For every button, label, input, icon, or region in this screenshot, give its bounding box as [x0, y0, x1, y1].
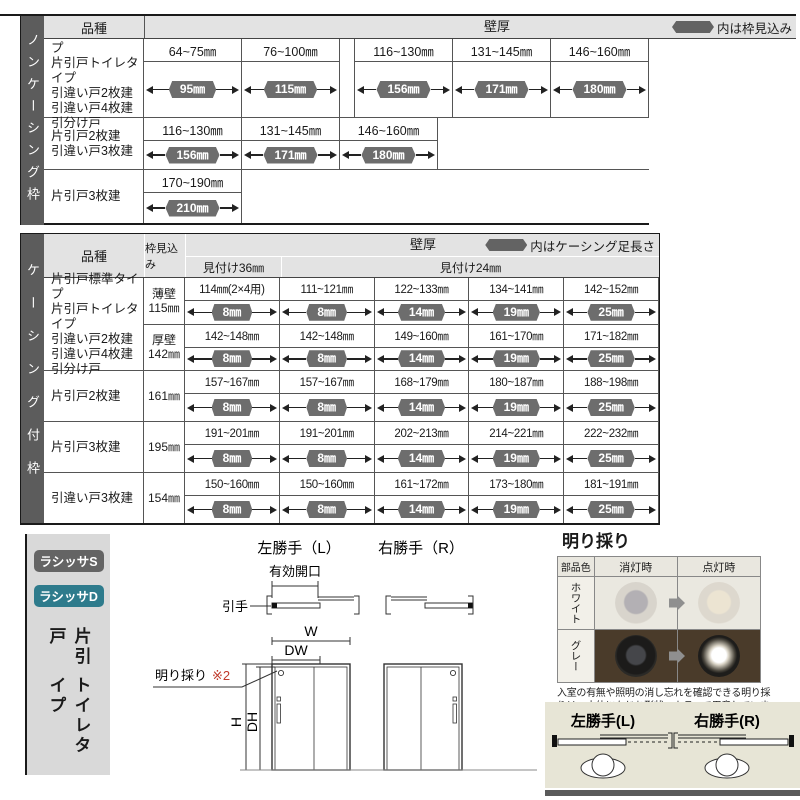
table-row: 片引戸標準タイプ片引戸トイレタイプ引違い戸2枚建引違い戸4枚建引分け戸 64~7… [44, 39, 649, 118]
spec-cells: 157~167㎜8㎜157~167㎜8㎜168~179㎜14㎜180~187㎜1… [185, 371, 659, 421]
spec-cell: 131~145㎜171㎜ [242, 118, 340, 169]
wall-thickness-range: 170~190㎜ [144, 170, 241, 193]
daylight-table-header: 部品色 消灯時 点灯時 [558, 557, 760, 577]
wall-thickness-range: 191~201㎜ [280, 422, 374, 445]
note-text: 内はケーシング足長さ [530, 236, 655, 255]
table-row: 片引戸2枚建引違い戸3枚建 116~130㎜156㎜131~145㎜171㎜14… [44, 118, 649, 170]
w-dimension-label: W [304, 623, 318, 639]
plan-left-hand [552, 733, 672, 748]
effective-opening-dimension [272, 581, 318, 598]
spec-cell: 111~121㎜8㎜ [280, 278, 375, 324]
table1-header-row: 品種 壁厚 内は枠見込み [44, 16, 796, 39]
depth-arrow: 14㎜ [375, 394, 469, 421]
spec-cell: 64~75㎜95㎜ [144, 39, 242, 117]
photo-white-light-on [678, 577, 760, 629]
depth-arrow: 8㎜ [185, 496, 279, 523]
spec-cells: 150~160㎜8㎜150~160㎜8㎜161~172㎜14㎜173~180㎜1… [185, 473, 659, 523]
depth-pill: 115㎜ [264, 81, 317, 98]
lens-gray-on [698, 635, 740, 677]
text-line: トイレタイプ [44, 676, 94, 775]
spec-cell: 76~100㎜115㎜ [242, 39, 340, 117]
wall-thickness-range: 222~232㎜ [564, 422, 658, 445]
text-line: 片引戸標準タイプ [51, 272, 143, 302]
depth-arrow: 8㎜ [185, 445, 279, 472]
mikomi-value: 161㎜ [144, 371, 184, 421]
depth-pill: 180㎜ [572, 81, 626, 98]
spec-cell: 150~160㎜8㎜ [280, 473, 375, 523]
mikomi-value: 195㎜ [144, 422, 184, 472]
sub-header-row: 見付け36㎜ 見付け24㎜ [186, 257, 659, 277]
spec-cell: 150~160㎜8㎜ [185, 473, 280, 523]
depth-arrow: 25㎜ [564, 348, 658, 371]
product-type-panel: ラシッサS ラシッサD 片引戸トイレタイプ [25, 534, 110, 775]
depth-arrow: 8㎜ [280, 301, 374, 324]
depth-pill: 25㎜ [587, 501, 634, 518]
lens-gray-off [615, 635, 657, 677]
spec-cell: 173~180㎜19㎜ [469, 473, 564, 523]
photo-gray-light-on [678, 630, 760, 682]
daylight-color-table: 部品色 消灯時 点灯時 ホワイト グレー [557, 556, 761, 683]
depth-arrow: 115㎜ [242, 62, 339, 117]
product-list: 片引戸2枚建引違い戸3枚建 [44, 118, 144, 169]
depth-arrow: 8㎜ [280, 496, 374, 523]
depth-arrow: 14㎜ [375, 301, 469, 324]
wall-thickness-range: 122~133㎜ [375, 278, 469, 301]
spec-cell: 149~160㎜14㎜ [375, 325, 470, 371]
wall-thickness-range: 171~182㎜ [564, 325, 658, 348]
spec-cell: 170~190㎜210㎜ [144, 170, 242, 223]
table-row: 片引戸3枚建 195㎜ 191~201㎜8㎜191~201㎜8㎜202~213㎜… [44, 422, 659, 473]
spec-cell: 214~221㎜19㎜ [469, 422, 564, 472]
depth-pill: 95㎜ [169, 81, 216, 98]
depth-pill: 14㎜ [398, 399, 445, 416]
plan-view-right [386, 596, 473, 614]
spec-cell: 161~170㎜19㎜ [469, 325, 564, 371]
left-hand-label: 左勝手(L) [570, 712, 635, 730]
mikomi-thin-wall: 薄壁115㎜ [144, 278, 184, 324]
depth-arrow: 19㎜ [469, 348, 563, 371]
spec-cell: 146~160㎜180㎜ [551, 39, 649, 117]
table-main: 品種 壁厚 内は枠見込み 片引戸標準タイプ片引戸トイレタイプ引違い戸2枚建引違い… [44, 16, 796, 225]
depth-arrow: 19㎜ [469, 445, 563, 472]
spec-cell: 161~172㎜14㎜ [375, 473, 470, 523]
product-label: 片引戸3枚建 [44, 422, 144, 472]
wall-header: 壁厚 内はケーシング足長さ [186, 234, 659, 257]
text-line: 115㎜ [148, 301, 179, 315]
depth-pill: 8㎜ [306, 501, 347, 518]
text-line: 片引戸2枚建 [51, 129, 143, 144]
wall-thickness-range: 64~75㎜ [144, 39, 241, 62]
depth-pill: 19㎜ [493, 350, 540, 367]
wall-thickness-range: 142~148㎜ [185, 325, 279, 348]
spec-cell: 146~160㎜180㎜ [340, 118, 438, 169]
depth-pill: 19㎜ [493, 304, 540, 321]
empty-cell [438, 118, 649, 169]
col-light-off: 消灯時 [595, 557, 678, 576]
depth-pill: 8㎜ [306, 450, 347, 467]
depth-pill: 19㎜ [493, 450, 540, 467]
col-header-wall: 壁厚 [397, 16, 597, 38]
hand-direction-drawing: 左勝手(L) 右勝手(R) [545, 702, 800, 788]
depth-arrow: 8㎜ [280, 445, 374, 472]
col-light-on: 点灯時 [678, 557, 760, 576]
product-label: 片引戸2枚建 [44, 371, 144, 421]
photo-white-light-off [595, 577, 678, 629]
text-line: 引違い戸3枚建 [51, 144, 143, 159]
spec-sheet: ノンケーシング枠 品種 壁厚 内は枠見込み 片引戸標準タイプ片引戸トイレタイプ引… [0, 0, 800, 800]
depth-pill: 14㎜ [398, 501, 445, 518]
depth-pill: 25㎜ [587, 304, 634, 321]
spec-cell: 116~130㎜156㎜ [355, 39, 453, 117]
page-footer-band [545, 790, 800, 796]
wall-thickness-range: 150~160㎜ [185, 473, 279, 496]
depth-pill: 8㎜ [212, 450, 253, 467]
depth-pill: 14㎜ [398, 350, 445, 367]
door-dimension-drawing: 左勝手（L） 右勝手（R） 有効開口 引手 W [108, 531, 553, 790]
wall-thickness-range: 157~167㎜ [185, 371, 279, 394]
note-ref-label: ※2 [212, 668, 230, 683]
depth-arrow: 14㎜ [375, 496, 469, 523]
depth-arrow: 171㎜ [242, 141, 339, 169]
spec-cell: 180~187㎜19㎜ [469, 371, 564, 421]
col-header-wall-wrap: 壁厚 内は枠見込み [145, 16, 796, 38]
wall-thickness-range: 116~130㎜ [355, 39, 452, 62]
h-dimension-label: H [228, 717, 244, 727]
hand-direction-panel: 左勝手(L) 右勝手(R) [545, 702, 800, 788]
table-main: 品種 枠見込み 壁厚 内はケーシング足長さ 見付け36㎜ 見付け24㎜ [44, 234, 659, 523]
spacer-cell [340, 39, 355, 117]
spec-cell: 222~232㎜25㎜ [564, 422, 659, 472]
depth-arrow: 8㎜ [280, 394, 374, 421]
depth-arrow: 180㎜ [551, 62, 648, 117]
dh-dimension-label: DH [244, 712, 260, 732]
person-top-view-icon [705, 754, 749, 778]
depth-pill: 8㎜ [306, 399, 347, 416]
depth-arrow: 210㎜ [144, 193, 241, 223]
depth-pill: 25㎜ [587, 399, 634, 416]
depth-arrow: 14㎜ [375, 348, 469, 371]
wall-thickness-range: 114㎜(2×4用) [185, 278, 279, 301]
wall-thickness-range: 134~141㎜ [469, 278, 563, 301]
text-line: 片引戸3枚建 [51, 189, 143, 204]
spec-cell: 157~167㎜8㎜ [280, 371, 375, 421]
row-label-white: ホワイト [558, 577, 595, 629]
spec-cells: 191~201㎜8㎜191~201㎜8㎜202~213㎜14㎜214~221㎜1… [185, 422, 659, 472]
empty-cell [242, 170, 649, 223]
wall-thickness-range: 142~148㎜ [280, 325, 374, 348]
right-hand-title: 右勝手（R） [378, 540, 464, 557]
depth-arrow: 25㎜ [564, 394, 658, 421]
depth-arrow: 19㎜ [469, 301, 563, 324]
wall-thickness-range: 142~152㎜ [564, 278, 658, 301]
note-text: 内は枠見込み [717, 18, 792, 37]
spec-cell: 142~152㎜25㎜ [564, 278, 659, 324]
wall-thickness-range: 168~179㎜ [375, 371, 469, 394]
handle-label: 引手 [222, 599, 248, 614]
effective-opening-label: 有効開口 [269, 564, 321, 579]
daylight-section-title: 明り採り [562, 527, 630, 552]
row-label-gray: グレー [558, 630, 595, 682]
spec-cells: 142~148㎜8㎜142~148㎜8㎜149~160㎜14㎜161~170㎜1… [185, 325, 659, 371]
elevation-right [384, 664, 462, 770]
depth-pill: 210㎜ [165, 200, 219, 217]
depth-pill: 25㎜ [587, 350, 634, 367]
spec-cell: 114㎜(2×4用)8㎜ [185, 278, 280, 324]
elevation-left [272, 664, 350, 770]
sub-header-face36: 見付け36㎜ [186, 257, 282, 277]
depth-pill: 8㎜ [212, 501, 253, 518]
depth-pill: 156㎜ [165, 147, 219, 164]
daylight-row-white: ホワイト [558, 577, 760, 629]
depth-pill: 14㎜ [398, 304, 445, 321]
depth-pill: 25㎜ [587, 450, 634, 467]
dw-dimension-label: DW [284, 642, 308, 658]
depth-pill: 171㎜ [263, 147, 317, 164]
table-row-group: 片引戸標準タイプ片引戸トイレタイプ引違い戸2枚建引違い戸4枚建引分け戸 薄壁11… [44, 278, 659, 371]
spec-cell: 142~148㎜8㎜ [185, 325, 280, 371]
plan-right-hand [674, 733, 794, 748]
col-header-kind: 品種 [44, 16, 145, 38]
text-line: 厚壁 [152, 333, 176, 347]
depth-arrow: 25㎜ [564, 445, 658, 472]
text-line: 引違い戸2枚建 [51, 332, 143, 347]
text-line: 引違い戸4枚建 [51, 101, 143, 116]
depth-pill: 8㎜ [212, 350, 253, 367]
spec-cell: 181~191㎜25㎜ [564, 473, 659, 523]
col-header-mikomi: 枠見込み [145, 234, 186, 277]
sub-header-face24: 見付け24㎜ [282, 257, 659, 277]
table-casing-frame: ケーシング付枠 品種 枠見込み 壁厚 内はケーシング足長さ 見付け36㎜ 見付 [20, 233, 660, 525]
wall-thickness-range: 191~201㎜ [185, 422, 279, 445]
depth-pill: 19㎜ [493, 501, 540, 518]
spec-cells: 64~75㎜95㎜76~100㎜115㎜116~130㎜156㎜131~145㎜… [144, 39, 649, 117]
depth-arrow: 19㎜ [469, 496, 563, 523]
product-type-vertical-label: 片引戸トイレタイプ [41, 627, 97, 775]
depth-pill: 8㎜ [306, 304, 347, 321]
spec-cell: 157~167㎜8㎜ [185, 371, 280, 421]
wall-thickness-range: 157~167㎜ [280, 371, 374, 394]
page-corner-line [0, 14, 21, 16]
wall-thickness-range: 111~121㎜ [280, 278, 374, 301]
series-badge-lasissa-d: ラシッサD [34, 585, 104, 607]
note-pill-icon [672, 21, 714, 33]
depth-pill: 180㎜ [361, 147, 415, 164]
spec-cell: 191~201㎜8㎜ [280, 422, 375, 472]
depth-arrow: 25㎜ [564, 301, 658, 324]
product-list: 片引戸3枚建 [44, 170, 144, 223]
mikomi-value: 154㎜ [144, 473, 184, 523]
table-row: 片引戸3枚建 170~190㎜210㎜ [44, 170, 649, 225]
table-noncasing-frame: ノンケーシング枠 品種 壁厚 内は枠見込み 片引戸標準タイプ片引戸トイレタイプ引… [20, 14, 796, 225]
spec-cell: 202~213㎜14㎜ [375, 422, 470, 472]
depth-pill: 14㎜ [398, 450, 445, 467]
col-part-color: 部品色 [558, 557, 595, 576]
person-top-view-icon [581, 754, 625, 778]
depth-arrow: 14㎜ [375, 445, 469, 472]
lens-white-off [615, 582, 657, 624]
depth-pill: 19㎜ [493, 399, 540, 416]
product-list: 片引戸標準タイプ片引戸トイレタイプ引違い戸2枚建引違い戸4枚建引分け戸 [44, 278, 144, 370]
product-list: 片引戸標準タイプ片引戸トイレタイプ引違い戸2枚建引違い戸4枚建引分け戸 [44, 39, 144, 117]
left-hand-title: 左勝手（L） [257, 540, 340, 557]
spec-cell: 116~130㎜156㎜ [144, 118, 242, 169]
table-row: 片引戸2枚建 161㎜ 157~167㎜8㎜157~167㎜8㎜168~179㎜… [44, 371, 659, 422]
sidebar-casing-frame-label: ケーシング付枠 [21, 234, 44, 523]
depth-arrow: 8㎜ [185, 394, 279, 421]
text-line: 引違い戸2枚建 [51, 86, 143, 101]
text-line: 入室の有無や照明の消し忘れを確認できる明り採 [557, 687, 775, 700]
spec-cells: 114㎜(2×4用)8㎜111~121㎜8㎜122~133㎜14㎜134~141… [185, 278, 659, 324]
wall-thickness-range: 214~221㎜ [469, 422, 563, 445]
wall-thickness-range: 188~198㎜ [564, 371, 658, 394]
depth-pill: 8㎜ [212, 304, 253, 321]
text-line: 薄壁 [152, 287, 176, 301]
depth-pill: 156㎜ [376, 81, 430, 98]
wall-thickness-range: 131~145㎜ [242, 118, 339, 141]
spec-cell: 171~182㎜25㎜ [564, 325, 659, 371]
photo-gray-light-off [595, 630, 678, 682]
daylight-window-label: 明り採り [155, 668, 207, 683]
spec-cell: 122~133㎜14㎜ [375, 278, 470, 324]
depth-pill: 8㎜ [306, 350, 347, 367]
wall-thickness-range: 161~170㎜ [469, 325, 563, 348]
daylight-row-gray: グレー [558, 629, 760, 682]
table1-body: 片引戸標準タイプ片引戸トイレタイプ引違い戸2枚建引違い戸4枚建引分け戸 64~7… [44, 39, 649, 225]
text-line: 引違い戸4枚建 [51, 347, 143, 362]
depth-arrow: 171㎜ [453, 62, 550, 117]
product-label: 引違い戸3枚建 [44, 473, 144, 523]
spec-cells: 170~190㎜210㎜ [144, 170, 649, 223]
text-line: 片引戸 [44, 627, 94, 676]
depth-arrow: 156㎜ [355, 62, 452, 117]
sub-rows: 114㎜(2×4用)8㎜111~121㎜8㎜122~133㎜14㎜134~141… [185, 278, 659, 370]
spec-cell: 142~148㎜8㎜ [280, 325, 375, 371]
sidebar-noncasing-frame-label: ノンケーシング枠 [21, 16, 44, 225]
text-line: 片引戸トイレタイプ [51, 302, 143, 332]
depth-arrow: 156㎜ [144, 141, 241, 169]
wall-thickness-range: 181~191㎜ [564, 473, 658, 496]
wall-thickness-range: 202~213㎜ [375, 422, 469, 445]
header-note: 内は枠見込み [672, 16, 792, 38]
spec-cell: 131~145㎜171㎜ [453, 39, 551, 117]
depth-arrow: 8㎜ [280, 348, 374, 371]
depth-arrow: 19㎜ [469, 394, 563, 421]
text-line: 142㎜ [148, 347, 180, 361]
wall-thickness-range: 116~130㎜ [144, 118, 241, 141]
wall-thickness-range: 76~100㎜ [242, 39, 339, 62]
lens-white-on [698, 582, 740, 624]
note-pill-icon [485, 239, 527, 251]
spec-cell: 191~201㎜8㎜ [185, 422, 280, 472]
depth-arrow: 180㎜ [340, 141, 437, 169]
wall-thickness-range: 131~145㎜ [453, 39, 550, 62]
wall-thickness-range: 180~187㎜ [469, 371, 563, 394]
spec-cell: 134~141㎜19㎜ [469, 278, 564, 324]
depth-pill: 8㎜ [212, 399, 253, 416]
text-line: 片引戸トイレタイプ [51, 56, 143, 86]
wall-thickness-range: 161~172㎜ [375, 473, 469, 496]
spec-cell: 188~198㎜25㎜ [564, 371, 659, 421]
header-note: 内はケーシング足長さ [485, 234, 655, 256]
spec-cells: 116~130㎜156㎜131~145㎜171㎜146~160㎜180㎜ [144, 118, 649, 169]
depth-arrow: 8㎜ [185, 301, 279, 324]
depth-arrow: 25㎜ [564, 496, 658, 523]
spec-cell: 168~179㎜14㎜ [375, 371, 470, 421]
plan-view-left [267, 596, 359, 614]
col-header-wall-group: 壁厚 内はケーシング足長さ 見付け36㎜ 見付け24㎜ [186, 234, 659, 277]
depth-pill: 171㎜ [474, 81, 528, 98]
mikomi-thick-wall: 厚壁142㎜ [144, 324, 184, 371]
depth-arrow: 95㎜ [144, 62, 241, 117]
wall-thickness-range: 146~160㎜ [340, 118, 437, 141]
wall-thickness-range: 146~160㎜ [551, 39, 648, 62]
wall-thickness-range: 150~160㎜ [280, 473, 374, 496]
wall-thickness-range: 149~160㎜ [375, 325, 469, 348]
depth-arrow: 8㎜ [185, 348, 279, 371]
right-hand-label: 右勝手(R) [694, 712, 760, 730]
series-badge-lasissa-s: ラシッサS [34, 550, 104, 572]
wall-thickness-range: 173~180㎜ [469, 473, 563, 496]
table-row: 引違い戸3枚建 154㎜ 150~160㎜8㎜150~160㎜8㎜161~172… [44, 473, 659, 523]
mikomi-column: 薄壁115㎜ 厚壁142㎜ [144, 278, 185, 370]
